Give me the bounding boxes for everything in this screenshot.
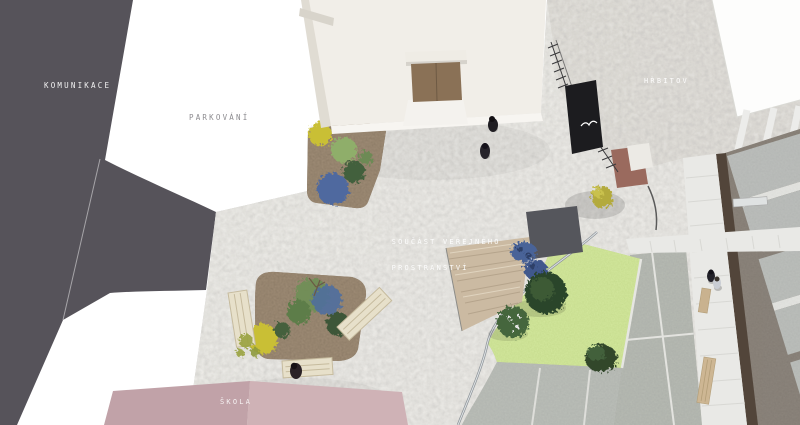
scene-canvas	[0, 0, 800, 425]
person-walking	[480, 143, 490, 159]
label-komunikace: KOMUNIKACE	[44, 81, 111, 90]
label-skola: ŠKOLA	[220, 398, 252, 406]
bench	[282, 358, 333, 378]
entrance-paving	[403, 98, 468, 126]
brick-wall-group	[611, 143, 653, 188]
label-hrbitov: HŘBITOV	[644, 77, 689, 85]
wall-cap-white	[627, 143, 653, 171]
label-parkovani: PARKOVÁNÍ	[189, 113, 249, 122]
lawn-bush	[585, 344, 617, 372]
church-building	[299, 0, 546, 134]
shrub-yellow-gate	[591, 186, 613, 208]
label-public-space-line2: PROSTRANSTVÍ	[392, 264, 469, 272]
label-public-space-line1: SOUČÁST VEŘEJNÉHO	[392, 238, 501, 246]
label-public-space: SOUČÁST VEŘEJNÉHO PROSTRANSTVÍ	[366, 223, 501, 288]
tree-flowering	[497, 306, 529, 338]
tree	[525, 272, 567, 314]
site-plan-render: KOMUNIKACE PARKOVÁNÍ HŘBITOV SOUČÁST VEŘ…	[0, 0, 800, 425]
